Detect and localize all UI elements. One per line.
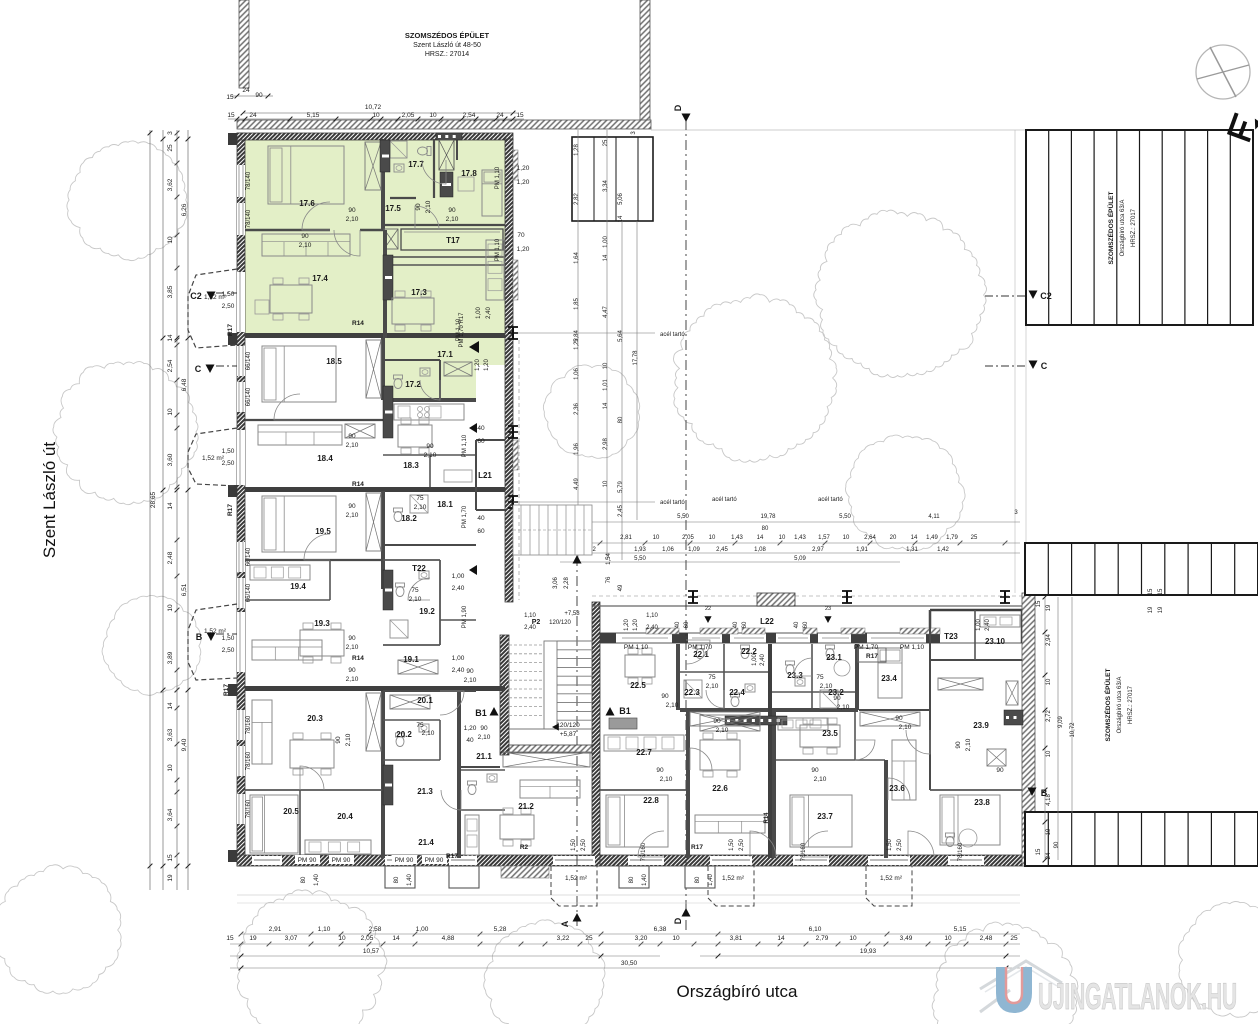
svg-text:10: 10	[779, 535, 786, 541]
svg-text:23.8: 23.8	[974, 798, 990, 807]
svg-text:2,45: 2,45	[618, 505, 624, 517]
svg-text:90: 90	[833, 695, 841, 702]
svg-text:2,10: 2,10	[409, 596, 422, 603]
svg-text:90: 90	[348, 207, 356, 214]
svg-text:20.5: 20.5	[283, 807, 299, 816]
svg-text:R14: R14	[352, 481, 364, 488]
svg-text:23.3: 23.3	[787, 671, 803, 680]
svg-text:2,97: 2,97	[812, 547, 824, 553]
svg-text:1,42: 1,42	[937, 547, 949, 553]
svg-text:D: D	[673, 104, 683, 111]
svg-text:5,79: 5,79	[618, 481, 624, 493]
svg-text:1,10: 1,10	[318, 926, 331, 933]
svg-text:80: 80	[695, 876, 701, 883]
svg-text:9,09: 9,09	[1058, 716, 1064, 728]
svg-text:23.10: 23.10	[985, 637, 1006, 646]
svg-text:P2: P2	[532, 619, 541, 626]
svg-text:1,50: 1,50	[222, 635, 235, 642]
svg-text:10: 10	[338, 935, 346, 942]
svg-text:80: 80	[629, 876, 635, 883]
svg-text:4,49: 4,49	[574, 478, 580, 490]
svg-text:17.3: 17.3	[411, 288, 427, 297]
svg-text:10: 10	[167, 764, 174, 772]
svg-text:2,10: 2,10	[422, 730, 435, 737]
svg-text:2,79: 2,79	[816, 935, 829, 942]
svg-text:1,20: 1,20	[633, 619, 639, 631]
svg-text:17.4: 17.4	[312, 274, 328, 283]
svg-text:2,45: 2,45	[716, 547, 728, 553]
svg-text:L22: L22	[760, 617, 774, 626]
svg-text:60: 60	[477, 528, 485, 535]
svg-text:1,20: 1,20	[624, 619, 630, 631]
svg-text:PM 90: PM 90	[298, 857, 317, 864]
svg-text:15: 15	[1148, 588, 1154, 595]
svg-text:10,72: 10,72	[365, 104, 382, 111]
svg-text:B: B	[196, 632, 203, 642]
svg-text:90: 90	[426, 443, 434, 450]
svg-text:90: 90	[955, 741, 962, 749]
svg-text:3,81: 3,81	[730, 935, 743, 942]
svg-text:40: 40	[477, 425, 485, 432]
svg-text:1,91: 1,91	[856, 547, 868, 553]
svg-text:1,96: 1,96	[574, 443, 580, 455]
svg-text:25: 25	[585, 935, 593, 942]
svg-text:2,50: 2,50	[222, 303, 235, 310]
svg-text:78/160: 78/160	[246, 799, 252, 818]
svg-text:14: 14	[777, 935, 785, 942]
svg-text:22.7: 22.7	[636, 748, 652, 757]
svg-text:4,47: 4,47	[603, 306, 609, 318]
svg-text:SZOMSZÉDOS ÉPÜLET: SZOMSZÉDOS ÉPÜLET	[1103, 668, 1112, 741]
svg-text:1,57: 1,57	[818, 535, 830, 541]
svg-text:1,40: 1,40	[708, 874, 714, 886]
svg-text:3,22: 3,22	[557, 935, 570, 942]
svg-text:25: 25	[603, 139, 609, 146]
svg-text:25: 25	[1010, 935, 1018, 942]
svg-text:23.1: 23.1	[826, 653, 842, 662]
svg-text:1,01: 1,01	[603, 379, 609, 391]
svg-text:Országbíró utca 63/A: Országbíró utca 63/A	[1120, 200, 1126, 257]
svg-text:1,06: 1,06	[662, 547, 674, 553]
svg-text:1,20: 1,20	[517, 246, 530, 253]
svg-text:2,10: 2,10	[345, 733, 352, 746]
svg-text:15: 15	[227, 112, 235, 119]
svg-text:2,10: 2,10	[346, 512, 359, 519]
svg-text:22.4: 22.4	[729, 688, 745, 697]
svg-text:2,64: 2,64	[864, 535, 876, 541]
svg-text:2,05: 2,05	[402, 112, 415, 119]
svg-text:1,00: 1,00	[752, 654, 758, 666]
svg-text:PM 1,70: PM 1,70	[462, 505, 468, 528]
svg-text:28,65: 28,65	[150, 491, 157, 508]
svg-text:19,78: 19,78	[760, 514, 776, 520]
svg-text:19: 19	[249, 935, 257, 942]
svg-text:acél tartó: acél tartó	[660, 332, 685, 338]
svg-text:1,22: 1,22	[574, 338, 580, 350]
svg-text:SZOMSZÉDOS ÉPÜLET: SZOMSZÉDOS ÉPÜLET	[405, 31, 490, 40]
svg-text:3,34: 3,34	[603, 180, 609, 192]
svg-text:14: 14	[603, 402, 609, 409]
svg-text:15: 15	[226, 94, 234, 101]
svg-text:5,50: 5,50	[677, 514, 689, 520]
svg-text:21.4: 21.4	[418, 838, 434, 847]
svg-text:78/140: 78/140	[246, 171, 252, 190]
svg-text:HRSZ.: 27017: HRSZ.: 27017	[1128, 685, 1134, 724]
svg-text:23.7: 23.7	[817, 812, 833, 821]
svg-text:10: 10	[167, 604, 174, 612]
svg-text:PM 1,10: PM 1,10	[462, 434, 468, 457]
svg-text:10: 10	[944, 935, 952, 942]
svg-text:22.3: 22.3	[684, 688, 700, 697]
svg-text:PM 1,90: PM 1,90	[462, 605, 468, 628]
svg-text:2,10: 2,10	[666, 702, 679, 709]
svg-text:14: 14	[757, 535, 764, 541]
svg-text:B: B	[1041, 788, 1048, 798]
svg-text:25: 25	[971, 535, 978, 541]
svg-text:19: 19	[1148, 606, 1154, 613]
svg-text:14: 14	[167, 502, 174, 510]
svg-text:10: 10	[1046, 678, 1052, 685]
svg-text:15: 15	[226, 935, 234, 942]
svg-text:2,36: 2,36	[574, 403, 580, 415]
svg-text:24: 24	[242, 87, 250, 94]
svg-text:25: 25	[167, 144, 174, 152]
svg-text:2,40: 2,40	[452, 667, 465, 674]
svg-text:R17: R17	[227, 324, 234, 336]
svg-text:23.4: 23.4	[881, 674, 897, 683]
svg-text:90: 90	[335, 736, 342, 744]
svg-text:1,40: 1,40	[642, 874, 648, 886]
svg-text:R17: R17	[866, 653, 878, 660]
svg-text:1,49: 1,49	[926, 535, 938, 541]
svg-text:2,50: 2,50	[222, 460, 235, 467]
svg-text:Szent László út 48-50: Szent László út 48-50	[413, 42, 481, 49]
svg-text:1,20: 1,20	[464, 725, 477, 732]
svg-text:R17: R17	[691, 844, 703, 851]
svg-text:3: 3	[167, 131, 174, 135]
svg-text:20.3: 20.3	[307, 714, 323, 723]
svg-text:75: 75	[416, 495, 424, 502]
svg-text:2,28: 2,28	[564, 577, 570, 589]
svg-text:2,10: 2,10	[478, 734, 491, 741]
svg-text:acél tartó: acél tartó	[712, 497, 737, 503]
svg-text:80: 80	[762, 526, 769, 532]
svg-text:R17: R17	[227, 504, 234, 516]
svg-text:15: 15	[1036, 848, 1042, 855]
svg-text:78/160: 78/160	[246, 715, 252, 734]
svg-text:3,49: 3,49	[900, 935, 913, 942]
svg-text:20.4: 20.4	[337, 812, 353, 821]
svg-text:10: 10	[603, 362, 609, 369]
svg-text:R14: R14	[352, 655, 364, 662]
svg-text:2,10: 2,10	[424, 452, 437, 459]
svg-text:2,50: 2,50	[222, 647, 235, 654]
svg-text:90: 90	[348, 667, 356, 674]
svg-text:23.5: 23.5	[822, 729, 838, 738]
svg-text:2,10: 2,10	[837, 704, 850, 711]
svg-text:2,10: 2,10	[464, 677, 477, 684]
svg-text:19: 19	[1046, 828, 1052, 835]
svg-text:21.3: 21.3	[417, 787, 433, 796]
svg-text:1,43: 1,43	[731, 535, 743, 541]
svg-text:20.2: 20.2	[396, 730, 412, 739]
svg-text:C2: C2	[1040, 291, 1052, 301]
svg-text:B1: B1	[475, 708, 487, 718]
svg-text:40: 40	[794, 621, 800, 628]
svg-text:2,10: 2,10	[660, 776, 673, 783]
svg-text:UJINGATLANOK.HU: UJINGATLANOK.HU	[1038, 977, 1237, 1017]
svg-text:23.9: 23.9	[973, 721, 989, 730]
svg-text:2,05: 2,05	[361, 935, 374, 942]
svg-text:60: 60	[742, 621, 748, 628]
svg-text:78/140: 78/140	[246, 209, 252, 228]
svg-text:PM 1,10: PM 1,10	[495, 238, 501, 261]
svg-text:19: 19	[167, 874, 174, 882]
svg-text:75: 75	[708, 674, 716, 681]
svg-text:1,50: 1,50	[222, 291, 235, 298]
svg-text:6,51: 6,51	[181, 583, 188, 596]
svg-text:90: 90	[480, 725, 488, 732]
svg-text:120/120: 120/120	[549, 620, 571, 626]
svg-text:1,00: 1,00	[476, 307, 482, 319]
svg-text:23: 23	[825, 606, 831, 612]
svg-text:1,00: 1,00	[603, 236, 609, 248]
svg-text:75: 75	[411, 587, 419, 594]
svg-text:14: 14	[618, 215, 624, 222]
svg-text:6,38: 6,38	[654, 926, 667, 933]
svg-text:2,10: 2,10	[346, 216, 359, 223]
svg-text:24: 24	[249, 112, 257, 119]
svg-text:66/140: 66/140	[246, 387, 252, 406]
svg-text:acél tartó: acél tartó	[818, 497, 843, 503]
svg-text:17.2: 17.2	[405, 380, 421, 389]
svg-text:80: 80	[618, 416, 624, 423]
svg-text:+5,87: +5,87	[560, 731, 577, 738]
svg-text:2,72: 2,72	[1046, 710, 1052, 722]
svg-text:5,06: 5,06	[618, 193, 624, 205]
svg-text:3,20: 3,20	[635, 935, 648, 942]
svg-text:1,20: 1,20	[517, 165, 530, 172]
svg-text:1,50: 1,50	[222, 448, 235, 455]
svg-text:18.2: 18.2	[401, 514, 417, 523]
svg-text:75: 75	[816, 674, 824, 681]
svg-text:10: 10	[1046, 750, 1052, 757]
svg-text:1,10: 1,10	[646, 613, 658, 619]
svg-text:15: 15	[167, 854, 174, 862]
svg-text:90: 90	[1054, 841, 1060, 848]
svg-text:80: 80	[301, 876, 307, 883]
svg-text:20: 20	[890, 535, 897, 541]
svg-text:78/160: 78/160	[801, 842, 807, 861]
svg-text:2,54: 2,54	[167, 359, 174, 372]
svg-text:2,10: 2,10	[346, 676, 359, 683]
svg-text:2,10: 2,10	[414, 504, 427, 511]
svg-text:75: 75	[416, 722, 424, 729]
svg-text:40: 40	[675, 621, 681, 628]
svg-text:2,10: 2,10	[299, 242, 312, 249]
svg-text:20.1: 20.1	[417, 696, 433, 705]
svg-text:PM 1,70: PM 1,70	[854, 644, 879, 651]
svg-text:C2: C2	[190, 291, 202, 301]
svg-text:21.1: 21.1	[476, 752, 492, 761]
svg-text:T17: T17	[446, 236, 460, 245]
svg-text:5,50: 5,50	[839, 514, 851, 520]
svg-text:PM 1,70: PM 1,70	[688, 644, 713, 651]
svg-text:5,15: 5,15	[307, 112, 320, 119]
svg-text:2,40: 2,40	[486, 307, 492, 319]
svg-text:18.1: 18.1	[437, 500, 453, 509]
svg-text:40: 40	[466, 737, 474, 744]
svg-text:14: 14	[167, 702, 174, 710]
svg-text:6,26: 6,26	[181, 203, 188, 216]
svg-text:14: 14	[167, 334, 174, 342]
svg-text:14: 14	[603, 254, 609, 261]
svg-text:2,81: 2,81	[620, 535, 632, 541]
svg-text:14: 14	[392, 935, 400, 942]
svg-text:70: 70	[517, 232, 525, 239]
svg-text:18.4: 18.4	[317, 454, 333, 463]
svg-text:90: 90	[348, 635, 356, 642]
svg-text:90: 90	[895, 715, 903, 722]
svg-text:2,10: 2,10	[820, 683, 833, 690]
svg-text:1,40: 1,40	[314, 874, 320, 886]
svg-text:18.3: 18.3	[403, 461, 419, 470]
svg-text:3,06: 3,06	[553, 577, 559, 589]
svg-text:10: 10	[653, 535, 660, 541]
svg-text:90: 90	[713, 718, 721, 725]
svg-text:6,10: 6,10	[809, 926, 822, 933]
svg-text:2,50: 2,50	[581, 839, 587, 851]
svg-text:PM 1,10: PM 1,10	[900, 644, 925, 651]
svg-text:1,08: 1,08	[754, 547, 766, 553]
svg-text:90: 90	[811, 767, 819, 774]
svg-text:1,00: 1,00	[452, 573, 465, 580]
svg-text:3,62: 3,62	[167, 178, 174, 191]
svg-text:2,50: 2,50	[739, 839, 745, 851]
svg-text:5,64: 5,64	[618, 330, 624, 342]
svg-text:120/120: 120/120	[556, 722, 580, 729]
svg-text:2,10: 2,10	[814, 776, 827, 783]
svg-text:PM 1,70 R17: PM 1,70 R17	[459, 312, 465, 348]
svg-text:90: 90	[301, 233, 309, 240]
svg-text:10: 10	[672, 935, 680, 942]
svg-text:3,63: 3,63	[167, 728, 174, 741]
svg-text:90: 90	[466, 668, 474, 675]
svg-text:23.6: 23.6	[889, 784, 905, 793]
svg-text:2,10: 2,10	[899, 724, 912, 731]
svg-text:C: C	[1041, 361, 1048, 371]
svg-text:2,10: 2,10	[446, 216, 459, 223]
svg-text:66/140: 66/140	[246, 351, 252, 370]
svg-text:19.1: 19.1	[403, 655, 419, 664]
svg-text:2,10: 2,10	[425, 200, 432, 213]
svg-text:78/160: 78/160	[958, 842, 964, 861]
svg-text:2,10: 2,10	[716, 727, 729, 734]
svg-text:1,50: 1,50	[887, 839, 893, 851]
svg-text:9,40: 9,40	[181, 738, 188, 751]
svg-text:90: 90	[656, 767, 664, 774]
svg-text:19.4: 19.4	[290, 582, 306, 591]
svg-text:2,91: 2,91	[269, 926, 282, 933]
svg-text:1,85: 1,85	[574, 298, 580, 310]
svg-text:2,50: 2,50	[897, 839, 903, 851]
svg-text:1,52 m²: 1,52 m²	[565, 875, 588, 882]
svg-text:17,78: 17,78	[633, 350, 639, 366]
svg-text:15: 15	[1036, 600, 1042, 607]
svg-text:1,31: 1,31	[906, 547, 918, 553]
svg-text:2,98: 2,98	[603, 438, 609, 450]
svg-text:2,82: 2,82	[574, 193, 580, 205]
svg-text:T23: T23	[944, 632, 958, 641]
svg-text:L21: L21	[478, 471, 492, 480]
svg-text:5,15: 5,15	[954, 926, 967, 933]
svg-text:2,05: 2,05	[682, 535, 694, 541]
svg-text:A: A	[560, 920, 570, 927]
svg-text:1,52 m²: 1,52 m²	[880, 875, 903, 882]
svg-text:R17: R17	[223, 684, 230, 696]
svg-text:90: 90	[661, 693, 669, 700]
svg-text:1,20: 1,20	[475, 359, 481, 371]
svg-text:60: 60	[477, 438, 485, 445]
svg-text:+7,58: +7,58	[564, 611, 580, 617]
svg-text:80: 80	[394, 876, 400, 883]
svg-text:Országbíró utca 63/A: Országbíró utca 63/A	[1117, 677, 1123, 734]
svg-text:2,40: 2,40	[985, 619, 991, 631]
svg-text:2,40: 2,40	[646, 625, 658, 631]
svg-text:1,09: 1,09	[688, 547, 700, 553]
svg-text:17.8: 17.8	[461, 169, 477, 178]
svg-text:PM 90: PM 90	[395, 857, 414, 864]
svg-text:D: D	[673, 917, 683, 924]
svg-text:2,40: 2,40	[760, 654, 766, 666]
svg-text:10: 10	[372, 112, 380, 119]
svg-text:1,50: 1,50	[571, 839, 577, 851]
svg-text:PM 90: PM 90	[425, 857, 444, 864]
svg-text:R2: R2	[520, 844, 529, 851]
svg-text:PM 1,10: PM 1,10	[495, 166, 501, 189]
svg-text:10: 10	[603, 480, 609, 487]
svg-text:90: 90	[415, 203, 422, 211]
svg-text:19: 19	[1046, 604, 1052, 611]
svg-text:15: 15	[1158, 588, 1164, 595]
svg-text:78/160: 78/160	[641, 842, 647, 861]
svg-text:4,11: 4,11	[928, 514, 940, 520]
svg-text:14: 14	[911, 535, 918, 541]
svg-text:10,57: 10,57	[363, 948, 380, 955]
svg-text:C: C	[195, 364, 202, 374]
svg-text:4,88: 4,88	[442, 935, 455, 942]
svg-text:1,00: 1,00	[452, 655, 465, 662]
svg-text:1,00: 1,00	[976, 619, 982, 631]
svg-text:1,20: 1,20	[484, 359, 490, 371]
svg-text:60: 60	[684, 621, 690, 628]
svg-text:76: 76	[606, 576, 612, 583]
svg-text:1,93: 1,93	[634, 547, 646, 553]
svg-text:15: 15	[516, 112, 524, 119]
svg-text:HRSZ.: 27017: HRSZ.: 27017	[1131, 208, 1137, 247]
svg-text:acél tartó: acél tartó	[660, 500, 685, 506]
svg-text:19.2: 19.2	[419, 607, 435, 616]
svg-text:2,10: 2,10	[706, 683, 719, 690]
svg-text:21.2: 21.2	[518, 802, 534, 811]
svg-text:10: 10	[167, 236, 174, 244]
svg-text:1,52 m²: 1,52 m²	[722, 875, 745, 882]
svg-text:10: 10	[843, 535, 850, 541]
svg-text:2,48: 2,48	[167, 551, 174, 564]
svg-text:10: 10	[709, 535, 716, 541]
svg-text:10: 10	[849, 935, 857, 942]
svg-text:1,64: 1,64	[574, 252, 580, 264]
